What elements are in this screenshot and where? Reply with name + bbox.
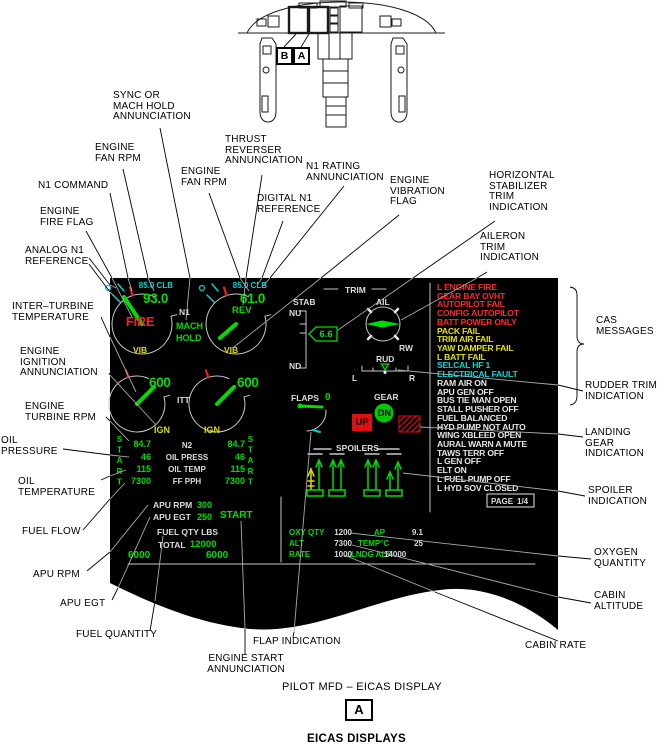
apu-rpm-value: 300 — [197, 500, 212, 510]
callout-oxygen-quantity: OXYGEN QUANTITY — [594, 548, 646, 569]
right-oil-temp-value: 115 — [218, 464, 245, 474]
flaps-value: 0 — [325, 392, 331, 403]
left-oil-temp-value: 115 — [124, 464, 151, 474]
cas-page-label: PAGE — [491, 497, 513, 506]
callout-oil-pressure: OIL PRESSURE — [1, 436, 58, 457]
callout-landing-gear: LANDING GEAR INDICATION — [585, 428, 660, 460]
gear-label: GEAR — [374, 392, 399, 402]
oil-temp-label: OIL TEMP — [158, 465, 216, 474]
left-ignition-annunciation: IGN — [154, 425, 170, 435]
gear-in-transit-box — [399, 416, 420, 432]
inset-marker-a: A — [293, 47, 310, 65]
right-vib-flag: VIB — [224, 345, 238, 355]
rudder-left-label: L — [352, 373, 357, 383]
cabin-rate-label: RATE — [289, 550, 310, 559]
ap-label: AP — [374, 528, 385, 537]
callout-inter-turbine-temperature: INTER–TURBINE TEMPERATURE — [12, 302, 94, 323]
cas-message-list: L ENGINE FIRE GEAR BAY OVHT AUTOPILOT FA… — [437, 283, 547, 492]
callout-sync-mach-hold: SYNC OR MACH HOLD ANNUNCIATION — [113, 91, 191, 123]
oil-press-label: OIL PRESS — [158, 453, 216, 462]
callout-flap-indication: FLAP INDICATION — [253, 637, 341, 648]
callout-engine-fire-flag: ENGINE FIRE FLAG — [40, 207, 93, 228]
rudder-right-label: R — [409, 373, 415, 383]
left-engine-fire-flag: FIRE — [126, 315, 154, 329]
itt-label: ITT — [177, 395, 190, 405]
left-fuel-flow-value: 7300 — [124, 476, 151, 486]
left-n2-value: 84.7 — [124, 439, 151, 449]
cabin-alt-value: 7300 — [328, 539, 352, 548]
mfd-screen-b — [289, 7, 308, 33]
mfd-screen-a — [309, 7, 328, 33]
fuel-qty-left: 6000 — [128, 550, 150, 561]
callout-oil-temperature: OIL TEMPERATURE — [18, 477, 95, 498]
gear-up-annunciation: UP — [352, 417, 372, 428]
cas-page-number: 1/4 — [517, 497, 528, 506]
fuel-total-label: TOTAL — [158, 540, 186, 550]
figure-caption: PILOT MFD – EICAS DISPLAY — [282, 681, 442, 693]
callout-fuel-flow: FUEL FLOW — [22, 527, 81, 538]
stab-label: STAB — [293, 297, 316, 307]
temp-value: 25 — [406, 539, 423, 548]
cabin-alt-label: ALT — [289, 539, 304, 548]
right-n1-rating: 85.0 CLB — [222, 281, 267, 290]
inset-marker-b: B — [276, 47, 293, 65]
fuel-qty-right: 6000 — [206, 550, 228, 561]
oxy-qty-label: OXY QTY — [289, 528, 324, 537]
left-itt-value: 600 — [149, 375, 171, 390]
fuel-flow-label: FF PPH — [158, 477, 216, 486]
callout-apu-egt: APU EGT — [60, 599, 105, 610]
callout-aileron-trim: AILERON TRIM INDICATION — [480, 232, 539, 264]
fuel-total-value: 12000 — [190, 539, 216, 550]
right-oil-press-value: 46 — [218, 452, 245, 462]
callout-cabin-altitude: CABIN ALTITUDE — [594, 591, 643, 612]
lndg-alt-value: 14000 — [384, 550, 406, 559]
mach-hold-annunciation: MACH HOLD — [176, 321, 203, 344]
callout-engine-start: ENGINE START ANNUNCIATION — [200, 654, 292, 675]
stab-trim-value: 6.6 — [315, 329, 337, 340]
left-oil-press-value: 46 — [124, 452, 151, 462]
callout-apu-rpm: APU RPM — [33, 570, 80, 581]
callout-cas-messages: CAS MESSAGES — [596, 316, 654, 337]
callout-fuel-quantity: FUEL QUANTITY — [76, 630, 157, 641]
eicas-diagram-page: 85.0 CLB 93.0 FIRE VIB N1 MACH HOLD 85.0… — [0, 0, 660, 751]
gear-down-annunciation: DN — [376, 408, 393, 418]
trim-title: TRIM — [345, 285, 366, 295]
rw-label: RW — [399, 343, 413, 353]
apu-egt-value: 250 — [197, 512, 212, 522]
left-n1-value: 93.0 — [143, 291, 168, 306]
left-vib-flag: VIB — [133, 345, 147, 355]
callout-engine-turbine-rpm: ENGINE TURBINE RPM — [25, 402, 96, 423]
cockpit-panel-inset — [238, 1, 445, 127]
callout-digital-n1-reference: DIGITAL N1 REFERENCE — [257, 194, 320, 215]
n2-label: N2 — [158, 441, 216, 450]
apu-rpm-label: APU RPM — [153, 500, 192, 510]
flaps-label: FLAPS — [291, 393, 319, 403]
apu-start-annunciation: START — [220, 510, 253, 521]
temp-label: TEMP°C — [358, 539, 389, 548]
callout-cabin-rate: CABIN RATE — [525, 641, 586, 652]
callout-thrust-reverser: THRUST REVERSER ANNUNCIATION — [225, 135, 303, 167]
callout-horizontal-stab-trim: HORIZONTAL STABILIZER TRIM INDICATION — [489, 171, 555, 213]
ap-value: 9.1 — [406, 528, 423, 537]
stab-nu-label: NU — [289, 308, 301, 318]
left-n1-rating: 85.0 CLB — [128, 281, 173, 290]
callout-n1-command: N1 COMMAND — [38, 181, 108, 192]
right-ignition-annunciation: IGN — [204, 425, 220, 435]
rudder-label: RUD — [376, 354, 394, 364]
callout-engine-fan-rpm-left: ENGINE FAN RPM — [95, 143, 141, 164]
right-itt-value: 600 — [237, 375, 259, 390]
right-n2-value: 84.7 — [218, 439, 245, 449]
flap-needle — [301, 406, 322, 407]
figure-marker-a: A — [345, 699, 373, 721]
cas-message: L HYD SOV CLOSED — [437, 484, 547, 493]
apu-egt-label: APU EGT — [153, 512, 191, 522]
callout-rudder-trim: RUDDER TRIM INDICATION — [585, 381, 657, 402]
spoilers-label: SPOILERS — [336, 443, 379, 453]
aileron-label: AIL — [376, 297, 390, 307]
right-n1-value: 61.0 — [240, 291, 265, 306]
oxy-qty-value: 1200 — [328, 528, 352, 537]
right-start-annunciation: START — [246, 435, 255, 488]
callout-engine-fan-rpm-right: ENGINE FAN RPM — [181, 167, 227, 188]
stab-nd-label: ND — [289, 361, 301, 371]
callout-spoiler-indication: SPOILER INDICATION — [588, 486, 647, 507]
left-start-annunciation: START — [115, 435, 124, 488]
callout-engine-ignition: ENGINE IGNITION ANNUNCIATION — [20, 347, 98, 379]
figure-title: EICAS DISPLAYS — [307, 733, 406, 745]
n1-label: N1 — [179, 307, 190, 317]
thrust-reverser-annunciation: REV — [232, 305, 252, 316]
right-fuel-flow-value: 7300 — [218, 476, 245, 486]
cabin-rate-value: 1000 — [328, 550, 352, 559]
callout-analog-n1-reference: ANALOG N1 REFERENCE — [25, 246, 88, 267]
callout-engine-vibration-flag: ENGINE VIBRATION FLAG — [390, 176, 445, 208]
fuel-qty-header: FUEL QTY LBS — [157, 527, 218, 537]
callout-n1-rating: N1 RATING ANNUNCIATION — [306, 162, 384, 183]
